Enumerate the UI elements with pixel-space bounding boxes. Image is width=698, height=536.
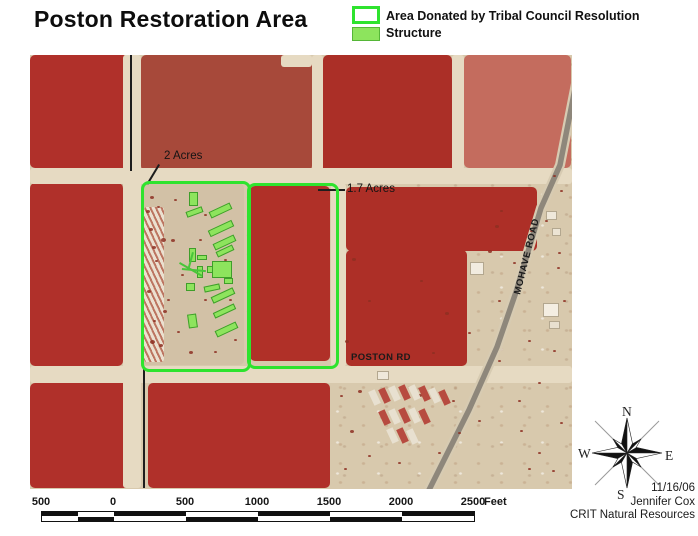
scale-segment (258, 512, 330, 516)
scale-label: 2500 (461, 496, 485, 508)
vegetation-spot (368, 455, 371, 457)
vegetation-spot (528, 468, 531, 470)
vegetation-spot (513, 262, 516, 264)
vegetation-spot (345, 340, 349, 343)
vegetation-spot (438, 452, 441, 454)
vegetation-spot (498, 360, 501, 362)
vegetation-spot (344, 468, 347, 470)
legend-swatch-structure (352, 27, 380, 41)
scale-segment (330, 517, 402, 521)
map-feature-layers (30, 55, 572, 489)
legend-label-area: Area Donated by Tribal Council Resolutio… (386, 9, 640, 23)
vegetation-spot (538, 452, 541, 454)
vegetation-spot (498, 300, 501, 302)
vegetation-spot (358, 390, 362, 393)
building (549, 321, 560, 329)
scale-segment (258, 517, 330, 521)
structure (207, 266, 213, 273)
map-document: Poston Restoration Area Area Donated by … (0, 0, 698, 536)
vegetation-spot (478, 420, 481, 422)
vegetation-spot (488, 250, 492, 253)
vegetation-spot (545, 220, 548, 222)
scale-segment (186, 512, 258, 516)
vegetation-spot (350, 430, 354, 433)
credits-author: Jennifer Cox (570, 496, 695, 510)
scale-label: 1000 (245, 496, 269, 508)
vegetation-spot (432, 352, 435, 354)
scale-segment (42, 517, 78, 521)
compass-west-label: W (578, 446, 591, 462)
compass-east-label: E (665, 448, 673, 464)
structure (187, 313, 198, 328)
vegetation-spot (468, 332, 471, 334)
legend-swatch-area-outline (352, 6, 380, 24)
trailer-building (418, 408, 431, 425)
scale-segment (42, 512, 78, 516)
vegetation-spot (458, 432, 461, 434)
credits-organization: CRIT Natural Resources (570, 509, 695, 523)
scale-segment (78, 512, 114, 516)
vegetation-spot (398, 462, 401, 464)
credits-date: 11/16/06 (570, 482, 695, 496)
structure (224, 278, 233, 284)
vegetation-spot (553, 350, 556, 352)
legend-label-structure: Structure (386, 26, 442, 40)
label-poston-rd: POSTON RD (351, 352, 411, 363)
scale-segment (402, 512, 474, 516)
scale-bar-unit: Feet (484, 496, 507, 508)
building (470, 262, 484, 275)
scale-label: 0 (110, 496, 116, 508)
scale-segment (330, 512, 402, 516)
scale-bar-strip (41, 511, 475, 522)
vegetation-spot (552, 470, 555, 472)
structure (197, 255, 207, 260)
scale-segment (402, 517, 474, 521)
compass-north-label: N (622, 404, 632, 420)
vegetation-spot (452, 400, 455, 402)
page-title: Poston Restoration Area (34, 6, 307, 33)
vegetation-spot (560, 422, 563, 424)
vegetation-spot (538, 382, 541, 384)
vegetation-spot (368, 300, 371, 302)
vegetation-spot (495, 225, 499, 228)
structure (186, 283, 195, 291)
scale-segment (114, 512, 186, 516)
scale-segment (78, 517, 114, 521)
vegetation-spot (560, 190, 563, 192)
vegetation-spot (500, 210, 503, 212)
structure (212, 261, 232, 278)
building (543, 303, 559, 317)
structure (189, 192, 198, 206)
building (377, 371, 389, 380)
aerial-map: 2 Acres 1.7 Acres POSTON RD MOHAVE ROAD (30, 55, 572, 489)
vegetation-spot (352, 258, 356, 261)
vegetation-spot (520, 430, 523, 432)
building (552, 228, 561, 236)
building (546, 211, 557, 220)
vegetation-spot (420, 280, 423, 282)
label-2-acres: 2 Acres (164, 150, 202, 162)
trailer-building (406, 428, 419, 445)
scale-label: 2000 (389, 496, 413, 508)
vegetation-spot (553, 175, 556, 177)
vegetation-spot (528, 340, 531, 342)
scale-segment (186, 517, 258, 521)
credits-block: 11/16/06 Jennifer Cox CRIT Natural Resou… (570, 482, 695, 523)
scale-segment (114, 517, 186, 521)
scale-label: 500 (32, 496, 50, 508)
scale-label: 1500 (317, 496, 341, 508)
trailer-building (438, 389, 451, 406)
vegetation-spot (557, 267, 560, 269)
vegetation-spot (340, 395, 343, 397)
vegetation-spot (563, 300, 566, 302)
label-1-7-acres: 1.7 Acres (347, 183, 395, 195)
scale-label: 500 (176, 496, 194, 508)
vegetation-spot (518, 400, 521, 402)
vegetation-spot (558, 252, 561, 254)
donated-area-boundary (247, 183, 339, 369)
vegetation-spot (445, 312, 449, 315)
